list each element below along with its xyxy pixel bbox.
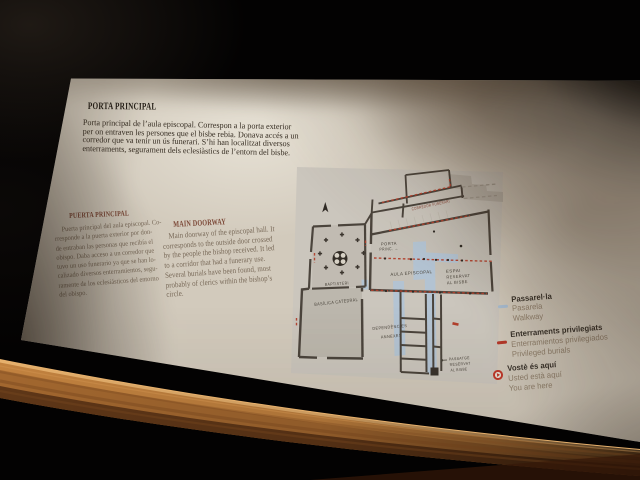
svg-text:PRINC. →: PRINC. → (379, 246, 398, 252)
